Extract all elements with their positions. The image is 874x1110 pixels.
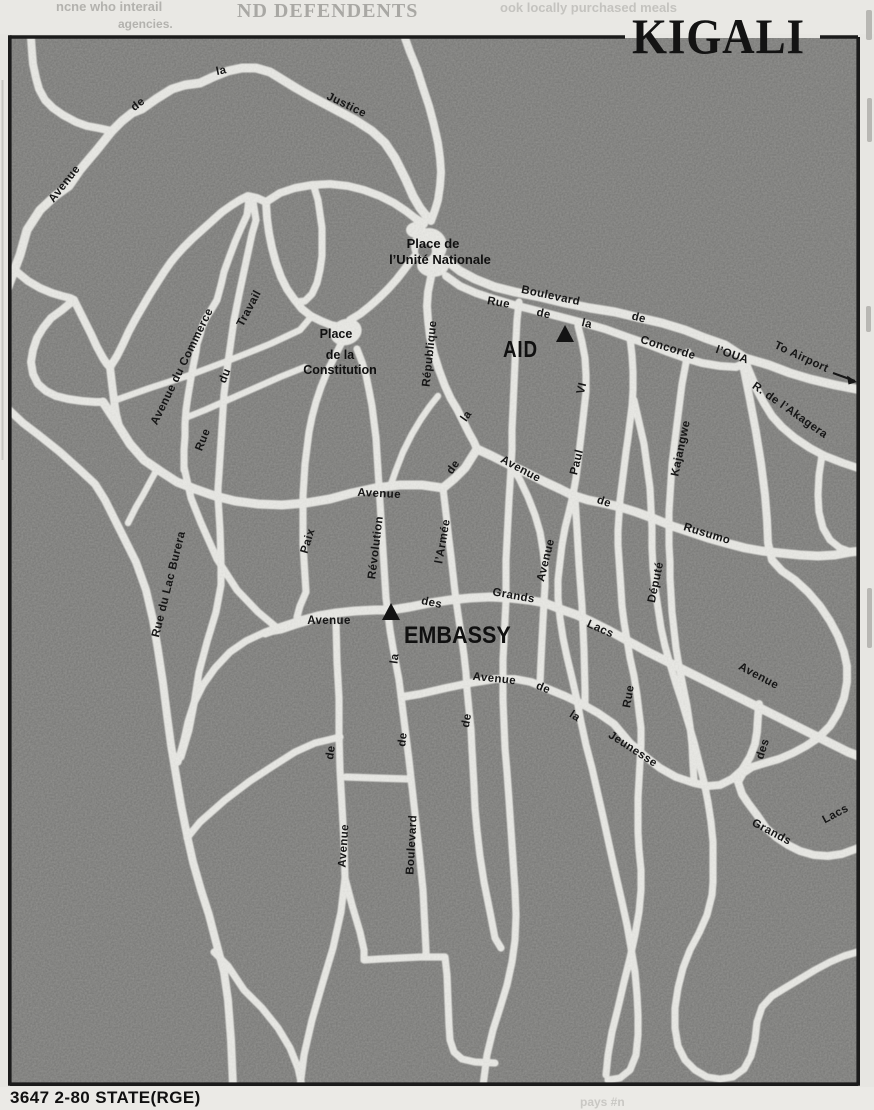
svg-text:de: de <box>396 732 410 748</box>
svg-text:KIGALI: KIGALI <box>632 10 805 65</box>
svg-text:Constitution: Constitution <box>303 363 377 377</box>
svg-text:ncne who interail: ncne who interail <box>56 0 162 14</box>
svg-text:Avenue: Avenue <box>357 487 401 501</box>
svg-text:de la: de la <box>326 348 356 362</box>
svg-text:3647 2-80 STATE(RGE): 3647 2-80 STATE(RGE) <box>10 1088 201 1107</box>
svg-text:Avenue: Avenue <box>307 615 351 627</box>
svg-text:pays #n: pays #n <box>580 1095 625 1109</box>
svg-text:Place: Place <box>320 327 353 341</box>
svg-text:Place de: Place de <box>407 236 460 251</box>
svg-text:ND DEFENDENTS: ND DEFENDENTS <box>237 0 418 22</box>
svg-text:de: de <box>460 712 474 728</box>
svg-text:AID: AID <box>503 337 538 362</box>
svg-text:agencies.: agencies. <box>118 17 173 31</box>
svg-text:EMBASSY: EMBASSY <box>404 621 511 648</box>
svg-text:la: la <box>388 653 401 665</box>
svg-text:l’Unité Nationale: l’Unité Nationale <box>389 252 491 267</box>
svg-text:de: de <box>324 745 338 761</box>
